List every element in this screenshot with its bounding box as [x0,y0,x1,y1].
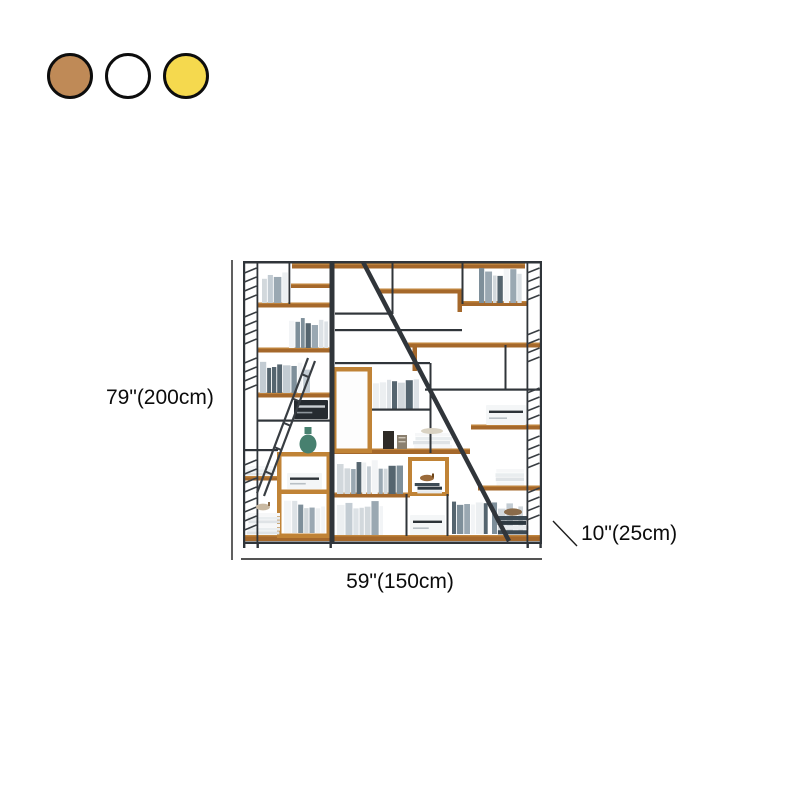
dimension-height-label: 79"(200cm) [106,387,214,409]
dimension-width-label: 59"(150cm) [330,571,470,593]
dimension-depth-label: 10"(25cm) [581,523,677,545]
product-image-page: 79"(200cm) 59"(150cm) 10"(25cm) [0,0,800,800]
